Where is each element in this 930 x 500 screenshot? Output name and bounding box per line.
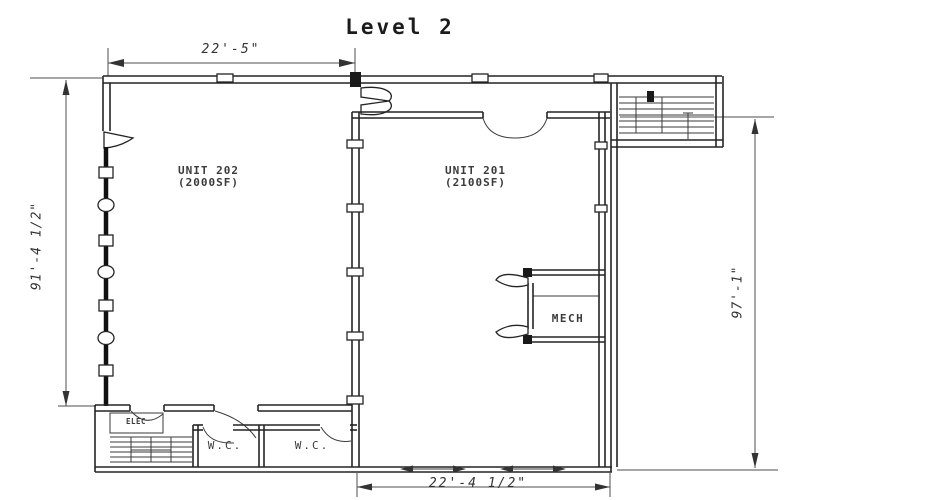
drawing-title: Level 2 — [310, 15, 490, 39]
elec-room-label: ELEC — [110, 417, 162, 426]
unit201-right-wall — [595, 112, 607, 467]
wc-right-label: W.C. — [285, 439, 339, 452]
unit-202-label: UNIT 202 (2000SF) — [178, 165, 239, 189]
unit-202-area: (2000SF) — [178, 177, 239, 189]
unit201-top-wall-double-door — [352, 112, 610, 138]
dimension-left: 91'-4 1/2" — [30, 202, 45, 290]
unit-201-area: (2100SF) — [445, 177, 506, 189]
unit-201-label: UNIT 201 (2100SF) — [445, 165, 506, 189]
floor-plan-page: Level 2 22'-5" 91'-4 1/2" 97'-1" 22'-4 1… — [0, 0, 930, 500]
dimension-top: 22'-5" — [146, 42, 316, 57]
wc-left-label: W.C. — [198, 439, 252, 452]
exterior-walls — [95, 74, 722, 472]
mech-room-label: MECH — [540, 312, 596, 325]
dimension-bottom: 22'-4 1/2" — [372, 476, 584, 491]
mech-room-walls — [496, 268, 605, 344]
stairwell-top-right — [611, 76, 723, 147]
left-wall-columns — [98, 132, 133, 406]
dimension-right: 97'-1" — [731, 266, 746, 319]
demising-wall — [347, 72, 391, 467]
right-dimension-lines — [617, 117, 778, 470]
